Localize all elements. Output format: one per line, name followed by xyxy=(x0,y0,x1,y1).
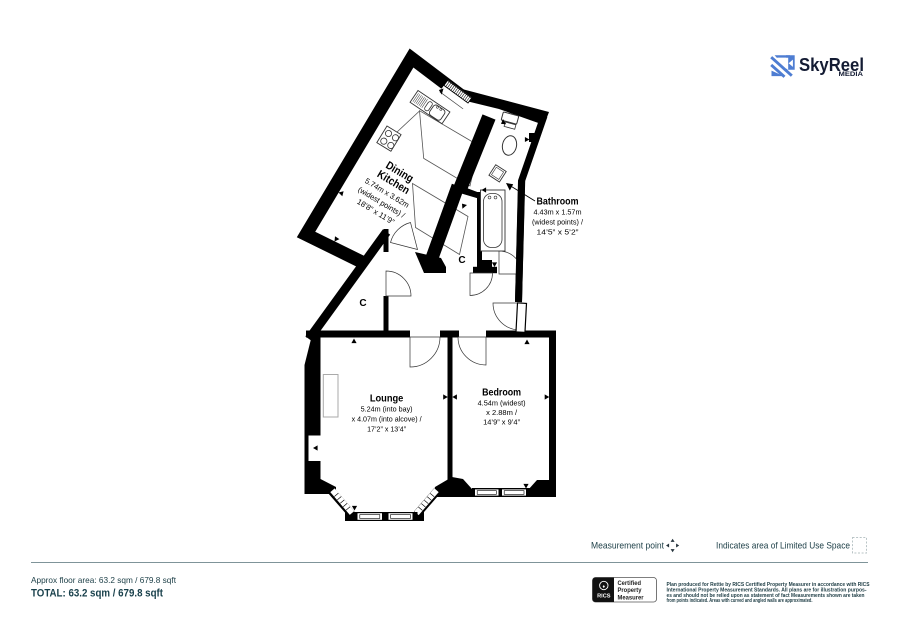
svg-text:TOTAL: 63.2 sqm / 679.8 sqft: TOTAL: 63.2 sqm / 679.8 sqft xyxy=(31,588,163,600)
svg-text:RICS: RICS xyxy=(597,594,611,600)
svg-text:14’9” x 9’4”: 14’9” x 9’4” xyxy=(483,420,521,427)
svg-text:C: C xyxy=(458,255,465,266)
svg-text:Lounge: Lounge xyxy=(370,394,404,405)
svg-text:Bathroom: Bathroom xyxy=(537,197,579,208)
svg-text:(widest points) /: (widest points) / xyxy=(532,220,583,227)
svg-text:from points indicated. Areas w: from points indicated. Areas with curved… xyxy=(667,598,813,604)
svg-text:Bedroom: Bedroom xyxy=(482,388,521,399)
svg-text:MEDIA: MEDIA xyxy=(839,71,864,78)
svg-text:Certified: Certified xyxy=(618,580,642,587)
svg-text:14’5” x 5’2”: 14’5” x 5’2” xyxy=(537,230,580,237)
svg-text:5.24m (into bay): 5.24m (into bay) xyxy=(361,407,413,414)
svg-text:4.43m x 1.57m: 4.43m x 1.57m xyxy=(534,210,582,217)
svg-text:x 2.88m /: x 2.88m / xyxy=(486,410,517,417)
svg-text:4.54m (widest): 4.54m (widest) xyxy=(478,401,526,408)
svg-text:Property: Property xyxy=(618,587,642,594)
svg-text:Approx floor area: 63.2 sqm /: Approx floor area: 63.2 sqm / 679.8 sqft xyxy=(31,575,177,585)
svg-text:17’2” x 13’4”: 17’2” x 13’4” xyxy=(367,427,407,434)
svg-text:C: C xyxy=(359,298,366,309)
svg-text:x 4.07m (into alcove) /: x 4.07m (into alcove) / xyxy=(352,417,422,424)
svg-text:♦: ♦ xyxy=(603,584,606,590)
svg-text:Indicates area of Limited Use: Indicates area of Limited Use Space xyxy=(716,541,850,551)
svg-text:Measurer: Measurer xyxy=(618,594,644,601)
svg-text:Measurement point: Measurement point xyxy=(591,541,664,551)
